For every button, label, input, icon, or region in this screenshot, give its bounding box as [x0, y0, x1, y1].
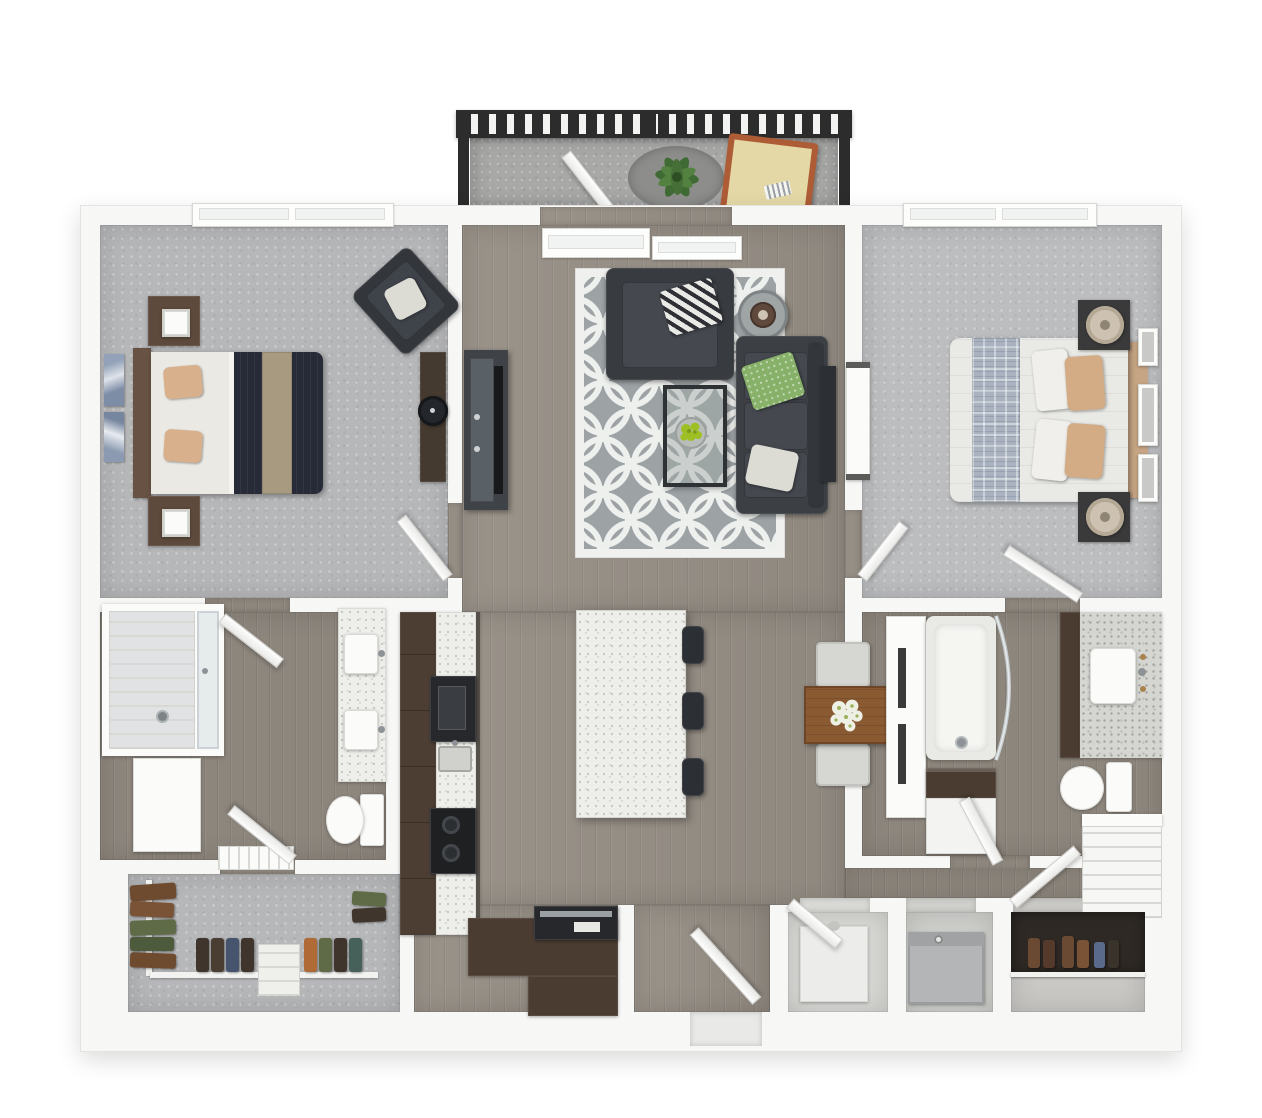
- bed1-headboard: [133, 348, 151, 498]
- bath2-faucet: [1138, 668, 1146, 676]
- bed1-fold-line: [229, 352, 234, 494]
- dining-chair-bottom: [816, 744, 870, 786]
- bed1-lamp-bottom: [162, 509, 190, 537]
- living-side-table: [738, 290, 788, 340]
- shower-glass-door: [197, 611, 219, 749]
- walkin-shower: [102, 604, 224, 756]
- island-stool-1: [682, 626, 704, 664]
- side-table-bowl: [750, 302, 776, 328]
- bath1-vanity: [338, 608, 386, 782]
- bed1-wall-art-1: [104, 354, 124, 406]
- bath2-vanity: [1080, 612, 1162, 758]
- island-stool-2: [682, 692, 704, 730]
- railing-post-right: [839, 110, 850, 210]
- bed1-wall-art-2: [104, 412, 124, 462]
- bed2-frame-2: [1138, 384, 1158, 446]
- shoe-closet-shelf-edge: [1011, 972, 1145, 977]
- balcony: [456, 108, 852, 212]
- entry-console-lower: [528, 976, 618, 1016]
- floor-plan-canvas: [0, 0, 1262, 1118]
- bed2-plaid-runner: [972, 338, 1020, 502]
- kitchen-cabinet-run: [400, 612, 436, 935]
- kitchen-sink: [438, 746, 472, 772]
- shower-tile: [109, 611, 195, 749]
- kitchen-counter: [436, 612, 480, 935]
- bath2-linen-cabinet: [886, 616, 926, 818]
- green-centerpiece: [677, 419, 705, 447]
- coffee-table: [663, 385, 727, 487]
- washer-dryer: [908, 932, 984, 1004]
- bed2-lamp-top: [1086, 306, 1124, 344]
- bath1-faucet-1: [378, 650, 385, 657]
- sliding-door-panel-1: [542, 228, 650, 258]
- laundry-door-gap: [906, 898, 976, 912]
- boot-3: [1062, 936, 1074, 968]
- bath2-sink: [1090, 648, 1136, 704]
- bed2-lamp-bottom: [1086, 498, 1124, 536]
- boot-5: [1094, 942, 1105, 968]
- sliding-door-panel-2: [652, 236, 742, 260]
- living-armchair: [606, 268, 734, 380]
- bath2-tall-cabinet: [1060, 612, 1080, 758]
- bed1-pillow-top: [163, 364, 204, 399]
- bedroom1-window: [192, 203, 394, 227]
- bed1-nightstand-top: [148, 296, 200, 346]
- island-stool-3: [682, 758, 704, 796]
- bath2-wood-shelf: [926, 768, 996, 798]
- bedroom2-window: [903, 203, 1097, 227]
- utility-door-gap: [800, 898, 870, 912]
- bathtub: [926, 616, 996, 760]
- bed1-lamp-top: [162, 309, 190, 337]
- kitchen-wall-oven: [430, 676, 476, 742]
- dining-chair-top: [816, 642, 870, 688]
- living-sofa: [736, 336, 828, 514]
- bedroom2-bath2-door-gap: [1005, 598, 1080, 612]
- bath1-knee-wall: [133, 758, 201, 852]
- bed2-tan-pillow-top: [1064, 355, 1106, 412]
- potted-plant: [648, 148, 706, 206]
- bed2-tan-pillow-bottom: [1064, 423, 1106, 480]
- balcony-slider-gap: [540, 207, 732, 225]
- bath1-toilet-bowl: [326, 796, 364, 844]
- bedroom1-door-gap: [448, 503, 462, 578]
- shower-handle: [202, 668, 208, 674]
- boot-4: [1077, 940, 1089, 968]
- bath2-shelving-unit: [1082, 826, 1162, 918]
- sofa-console: [820, 366, 836, 482]
- bed2-frame-1: [1138, 328, 1158, 366]
- bath2-toilet-bowl: [1060, 766, 1104, 810]
- boot-6: [1108, 940, 1119, 968]
- bed2-frame-3: [1138, 454, 1158, 502]
- bed2-wardrobe-panel: [846, 362, 870, 480]
- tv-screen: [494, 366, 503, 494]
- front-door-threshold: [690, 1012, 762, 1046]
- boot-1: [1028, 938, 1040, 968]
- bed1-dresser-mirror: [418, 396, 448, 426]
- bed1-runner: [262, 352, 292, 494]
- bedroom2-door-gap: [845, 510, 862, 578]
- bath2-toilet-tank: [1106, 762, 1132, 812]
- bed1-pillow-bottom: [163, 429, 203, 464]
- shower-head: [158, 712, 167, 721]
- bath2-shelf-slab: [1082, 814, 1162, 826]
- railing-post-center: [644, 110, 656, 136]
- bath1-faucet-2: [378, 726, 385, 733]
- bath1-sink-2: [344, 710, 378, 750]
- railing-post-left: [458, 110, 469, 210]
- bed1-nightstand-bottom: [148, 496, 200, 546]
- entry-console-appliance: [534, 906, 618, 940]
- chaise-towel: [763, 180, 791, 199]
- closet1-shelf: [258, 944, 300, 996]
- boot-2: [1043, 940, 1055, 968]
- kitchen-island: [576, 610, 686, 818]
- dining-table: [804, 686, 888, 744]
- tub-curved-glass: [990, 614, 1020, 762]
- media-console: [464, 350, 508, 510]
- tub-faucet: [957, 738, 966, 747]
- flower-centerpiece: [826, 696, 866, 734]
- kitchen-cooktop: [430, 808, 476, 874]
- bath1-sink-1: [344, 634, 378, 674]
